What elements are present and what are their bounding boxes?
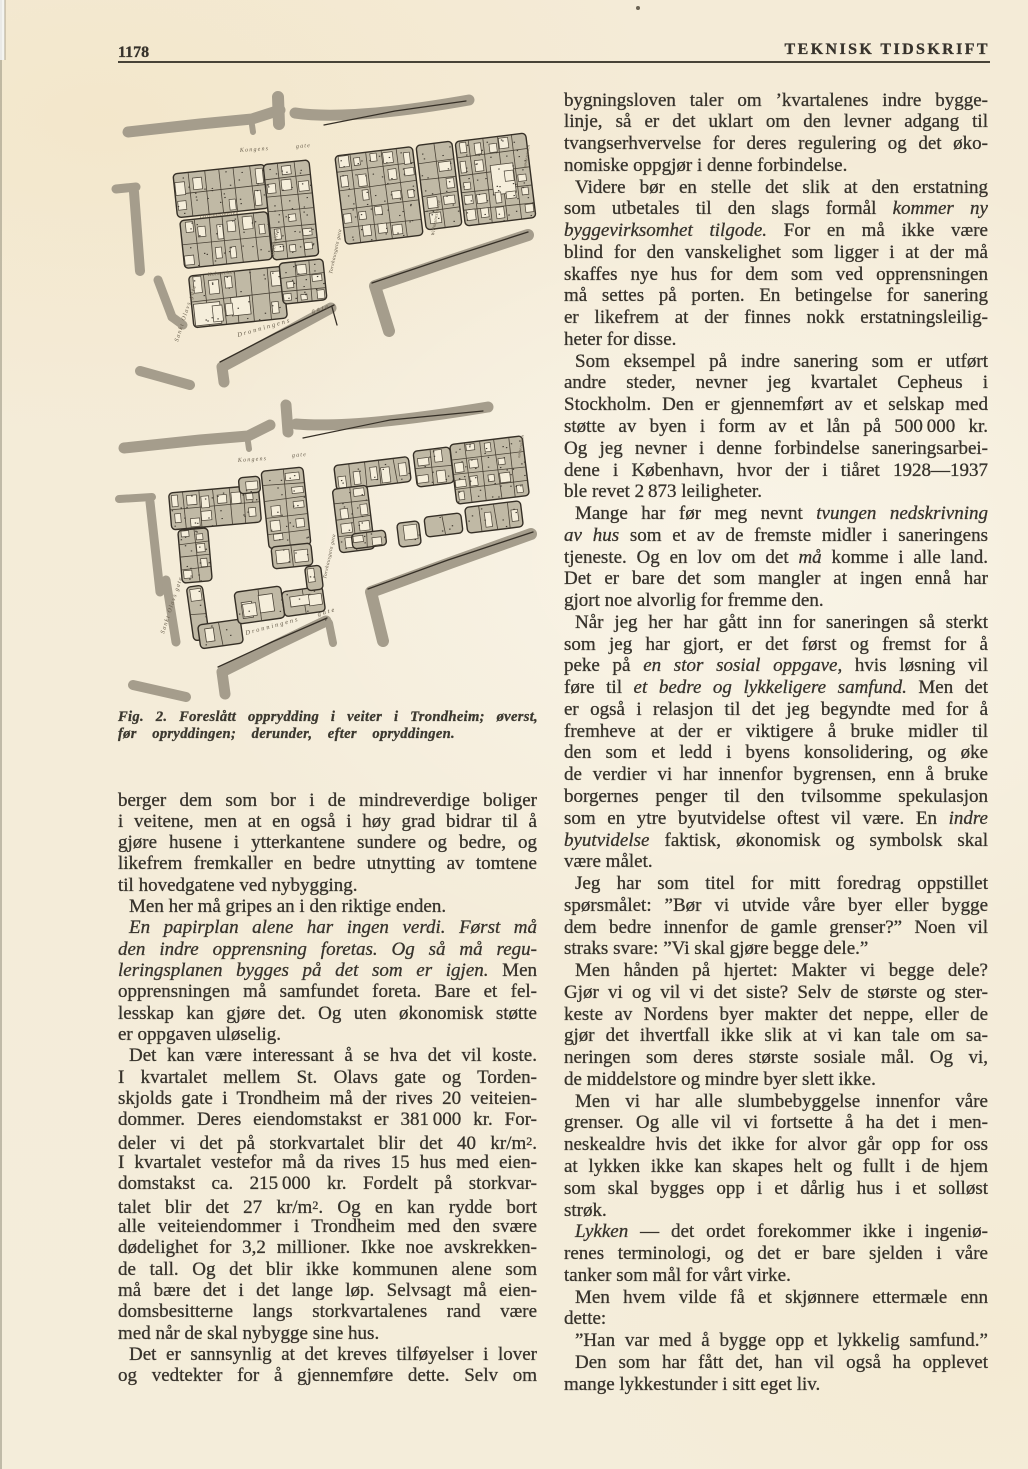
svg-text:gate: gate: [292, 452, 308, 459]
svg-text:Torvhausgata gata: Torvhausgata gata: [328, 228, 343, 274]
svg-text:Torvhausgata gata: Torvhausgata gata: [322, 533, 337, 579]
svg-text:Kongens: Kongens: [239, 146, 270, 154]
svg-text:Kongens: Kongens: [237, 456, 268, 464]
svg-text:gate: gate: [296, 143, 312, 150]
